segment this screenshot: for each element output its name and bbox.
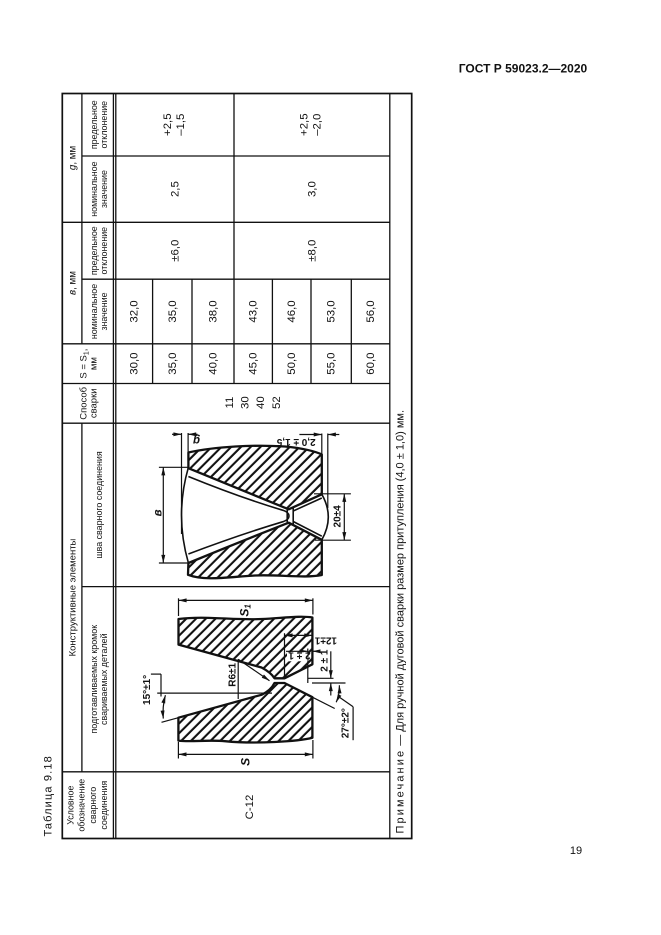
- svg-text:сварки: сварки: [89, 388, 100, 418]
- svg-text:46,0: 46,0: [286, 300, 298, 322]
- svg-text:27°±2°: 27°±2°: [341, 708, 352, 738]
- svg-text:в: в: [152, 509, 164, 516]
- svg-text:g: g: [193, 434, 201, 446]
- svg-text:соединения: соединения: [99, 781, 109, 830]
- svg-text:мм: мм: [89, 357, 100, 370]
- svg-text:45,0: 45,0: [248, 353, 260, 375]
- svg-text:Таблица 9.18: Таблица 9.18: [43, 755, 55, 836]
- svg-text:3,0: 3,0: [306, 181, 318, 197]
- svg-text:38,0: 38,0: [208, 300, 220, 322]
- svg-text:35,0: 35,0: [167, 353, 179, 375]
- svg-text:предельное: предельное: [89, 100, 99, 149]
- svg-text:Примечание — Для ручной дугово: Примечание — Для ручной дуговой сварки р…: [395, 410, 407, 834]
- svg-text:55,0: 55,0: [326, 353, 338, 375]
- svg-text:2,0 ± 1,5: 2,0 ± 1,5: [276, 436, 315, 447]
- svg-text:свариваемых деталей: свариваемых деталей: [99, 633, 109, 725]
- svg-text:53,0: 53,0: [326, 300, 338, 322]
- svg-text:g, мм: g, мм: [67, 145, 78, 170]
- svg-text:32,0: 32,0: [129, 300, 141, 322]
- svg-text:отклонение: отклонение: [99, 101, 109, 149]
- svg-text:–1,5: –1,5: [175, 114, 187, 136]
- svg-text:S: S: [239, 758, 253, 766]
- svg-text:52: 52: [271, 396, 283, 409]
- svg-text:40,0: 40,0: [208, 353, 220, 375]
- svg-text:11: 11: [224, 397, 236, 409]
- svg-text:значение: значение: [99, 292, 109, 330]
- svg-text:Конструктивные элементы: Конструктивные элементы: [67, 538, 78, 656]
- svg-text:номинальное: номинальное: [89, 161, 99, 216]
- svg-text:–2,0: –2,0: [311, 114, 323, 136]
- svg-text:отклонение: отклонение: [99, 227, 109, 275]
- svg-text:20±4: 20±4: [333, 505, 344, 528]
- svg-text:в, мм: в, мм: [67, 271, 78, 295]
- svg-text:R6±1: R6±1: [228, 662, 239, 686]
- svg-text:значение: значение: [99, 170, 109, 208]
- svg-text:номинальное: номинальное: [89, 284, 99, 339]
- svg-text:56,0: 56,0: [365, 300, 377, 322]
- svg-text:30: 30: [240, 396, 252, 409]
- svg-text:С-12: С-12: [244, 795, 256, 820]
- svg-text:30,0: 30,0: [129, 353, 141, 375]
- svg-text:+2,5: +2,5: [162, 113, 174, 136]
- svg-text:сварного: сварного: [88, 787, 98, 824]
- svg-text:Условное: Условное: [65, 786, 75, 825]
- svg-text:±8,0: ±8,0: [306, 240, 318, 262]
- svg-text:12±1: 12±1: [314, 634, 337, 645]
- svg-text:ГОСТ Р 59023.2—2020: ГОСТ Р 59023.2—2020: [459, 61, 588, 75]
- svg-text:40: 40: [255, 396, 267, 409]
- svg-text:50,0: 50,0: [286, 353, 298, 375]
- svg-text:подготавливаемых кромок: подготавливаемых кромок: [89, 625, 99, 734]
- svg-text:2 ± 1: 2 ± 1: [320, 649, 331, 672]
- svg-text:35,0: 35,0: [167, 300, 179, 322]
- svg-text:15°±1°: 15°±1°: [142, 675, 153, 705]
- svg-text:60,0: 60,0: [365, 353, 377, 375]
- svg-text:43,0: 43,0: [248, 300, 260, 322]
- svg-text:обозначение: обозначение: [77, 779, 87, 832]
- svg-text:19: 19: [570, 845, 582, 857]
- svg-text:±6,0: ±6,0: [169, 240, 181, 262]
- svg-text:+2,5: +2,5: [298, 113, 310, 136]
- svg-text:2,5: 2,5: [169, 181, 181, 197]
- svg-text:2 ± 1: 2 ± 1: [288, 650, 311, 661]
- svg-text:предельное: предельное: [89, 226, 99, 275]
- svg-text:шва сварного соединения: шва сварного соединения: [94, 451, 104, 558]
